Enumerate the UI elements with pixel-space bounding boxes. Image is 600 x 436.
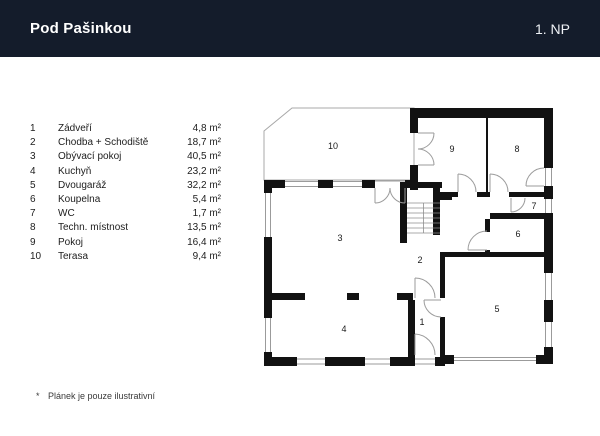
room-label-2: 2 bbox=[417, 255, 422, 265]
room-label-8: 8 bbox=[514, 144, 519, 154]
footnote-text: Plánek je pouze ilustrativní bbox=[48, 391, 155, 401]
room-label-9: 9 bbox=[449, 144, 454, 154]
terrace-outline bbox=[264, 108, 414, 180]
footnote: * Plánek je pouze ilustrativní bbox=[36, 391, 155, 401]
footnote-marker: * bbox=[36, 391, 48, 401]
room-label-1: 1 bbox=[419, 317, 424, 327]
room-label-6: 6 bbox=[515, 229, 520, 239]
room-label-7: 7 bbox=[531, 201, 536, 211]
room-label-4: 4 bbox=[341, 324, 346, 334]
room-label-3: 3 bbox=[337, 233, 342, 243]
room-label-5: 5 bbox=[494, 304, 499, 314]
room-label-10: 10 bbox=[328, 141, 338, 151]
floor-plan: 1 2 3 4 5 6 7 8 9 10 bbox=[0, 0, 600, 436]
